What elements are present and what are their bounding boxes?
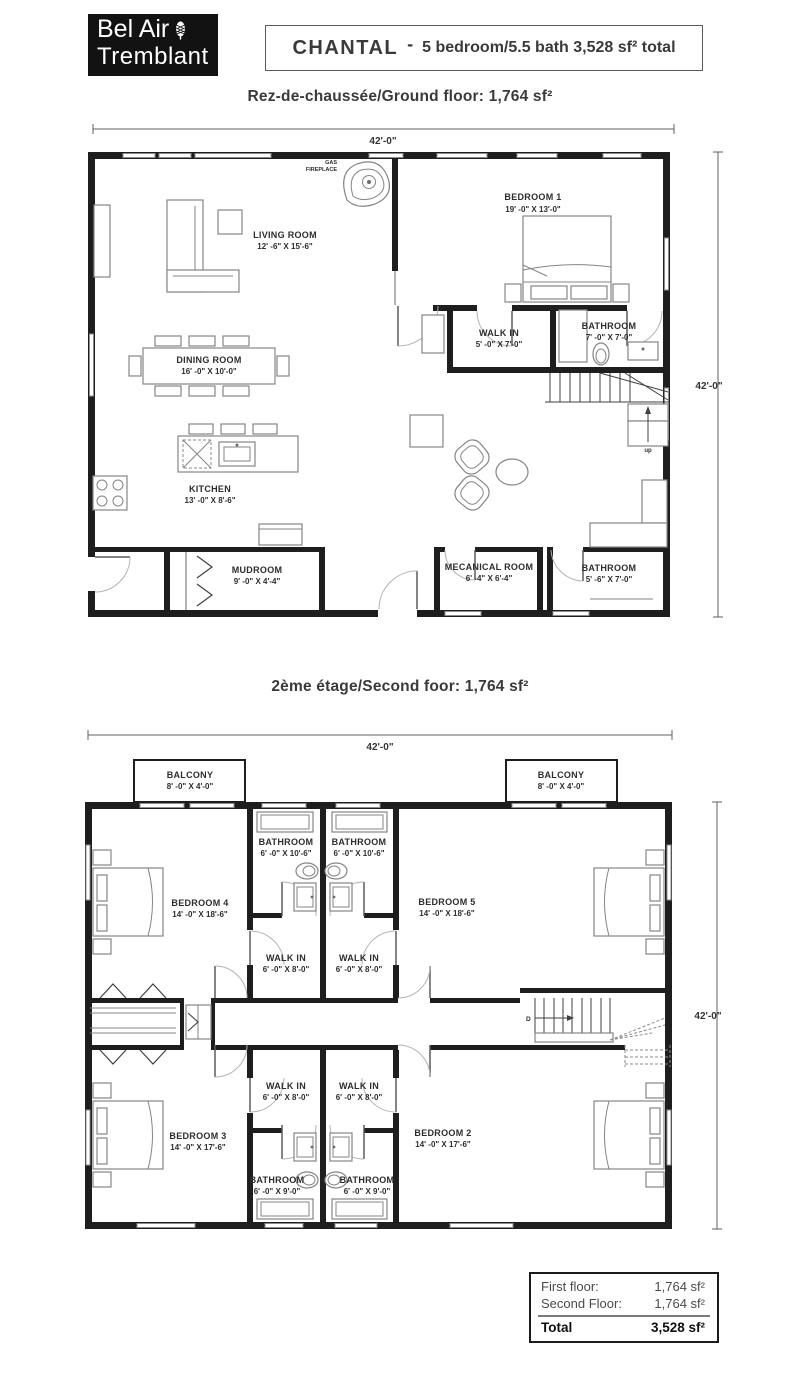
bed-bedroom4 [93,850,163,954]
bedroom1-label: BEDROOM 1 [504,192,561,202]
total-label: Total [541,1320,572,1335]
summary-row-first-floor: First floor: 1,764 sf² [531,1278,717,1295]
stove [93,476,127,510]
bedroom3-label: BEDROOM 3 [169,1131,226,1141]
fireplace: GAS FIREPLACE [306,160,390,206]
second-interior-walls [85,809,665,1222]
first-floor-label: First floor: [541,1279,599,1294]
ensuite-bathroom-label: BATHROOM [582,321,637,331]
svg-text:8' -0" X 4'-0": 8' -0" X 4'-0" [538,782,585,791]
bed-bedroom5 [594,850,664,954]
svg-text:14' -0" X 17'-6": 14' -0" X 17'-6" [170,1143,226,1152]
summary-row-total: Total 3,528 sf² [531,1319,717,1336]
bathroom3-label: BATHROOM [250,1175,305,1185]
svg-text:6' -0" X 8'-0": 6' -0" X 8'-0" [263,1093,310,1102]
hallway [90,984,211,1064]
second-floor-plan: 42'-0" 42'-0" BALCONY 8' -0" X 4'-0" BAL… [80,725,730,1235]
dining-room-label: DINING ROOM [176,355,241,365]
bedroom2-label: BEDROOM 2 [414,1128,471,1138]
sitting-area [451,436,528,514]
svg-text:7' -0" X 7'-0": 7' -0" X 7'-0" [586,333,633,342]
svg-text:6' -0" X 9'-0": 6' -0" X 9'-0" [254,1187,301,1196]
hall-closet [422,315,444,353]
walkin2-label: WALK IN [339,1081,379,1091]
balcony-left-label: BALCONY [167,770,214,780]
hall-cabinet [410,415,443,447]
bedroom4-label: BEDROOM 4 [171,898,228,908]
plan-title-box: CHANTAL - 5 bedroom/5.5 bath 3,528 sf² t… [265,25,703,71]
total-value: 3,528 sf² [651,1320,705,1335]
walkin4-label: WALK IN [266,953,306,963]
stairs-down-label: D [526,1016,531,1023]
svg-text:14' -0" X 18'-6": 14' -0" X 18'-6" [172,910,228,919]
cabinet [94,205,110,277]
bed-bedroom3 [93,1083,163,1187]
svg-text:6' -0" X 10'-6": 6' -0" X 10'-6" [261,849,312,858]
second-floor-heading: 2ème étage/Second foor: 1,764 sf² [0,678,800,696]
logo-line1: Bel Air [97,16,169,44]
balconies: BALCONY 8' -0" X 4'-0" BALCONY 8' -0" X … [134,760,617,802]
bench [590,480,667,547]
dining-table [129,336,289,396]
kitchen-counter [259,524,302,545]
bed-bedroom2 [594,1083,664,1187]
gas-fireplace-label1: GAS [325,160,337,166]
second-floor-label: Second Floor: [541,1296,622,1311]
bed-bedroom1 [505,216,629,302]
svg-text:5' -0" X 7'-0": 5' -0" X 7'-0" [476,340,523,349]
second-windows [86,804,671,1228]
logo-line2: Tremblant [97,44,218,70]
walkin5-label: WALK IN [339,953,379,963]
plan-summary: 5 bedroom/5.5 bath 3,528 sf² total [422,39,675,57]
svg-text:6' -0" X 8'-0": 6' -0" X 8'-0" [336,965,383,974]
ground-floor-plan: 42'-0" 42'-0" [85,120,735,625]
summary-divider [538,1315,710,1317]
svg-text:16' -0" X 10'-0": 16' -0" X 10'-0" [181,367,237,376]
svg-text:6' -0" X 8'-0": 6' -0" X 8'-0" [336,1093,383,1102]
pinecone-icon [174,20,187,40]
bathroom5-label: BATHROOM [332,837,387,847]
second-height-dim: 42'-0" [694,1011,721,1022]
walkin-label: WALK IN [479,328,519,338]
gas-fireplace-label2: FIREPLACE [306,167,338,173]
summary-row-second-floor: Second Floor: 1,764 sf² [531,1295,717,1312]
balcony-right-label: BALCONY [538,770,585,780]
svg-text:19' -0" X 13'-0": 19' -0" X 13'-0" [505,205,561,214]
ground-height-dim: 42'-0" [695,381,722,392]
svg-text:6' -0" X 10'-6": 6' -0" X 10'-6" [334,849,385,858]
bathroom2-label: BATHROOM [340,1175,395,1185]
svg-text:8' -0" X 4'-0": 8' -0" X 4'-0" [167,782,214,791]
bedroom5-label: BEDROOM 5 [418,897,475,907]
plan-sheet: Bel Air Tremblant CHANTAL - 5 bedroom/5.… [0,0,800,1375]
side-table [218,210,242,234]
svg-text:9' -0" X 4'-4": 9' -0" X 4'-4" [234,577,281,586]
svg-text:14' -0" X 17'-6": 14' -0" X 17'-6" [415,1140,471,1149]
first-floor-value: 1,764 sf² [654,1279,705,1294]
svg-text:6' -0" X 8'-0": 6' -0" X 8'-0" [263,965,310,974]
kitchen-island [178,424,298,472]
mechanical-room-label: MECANICAL ROOM [445,562,534,572]
svg-text:12' -6" X 15'-6": 12' -6" X 15'-6" [257,242,313,251]
svg-text:6' -4" X 6'-4": 6' -4" X 6'-4" [466,574,513,583]
main-bathroom-label: BATHROOM [582,563,637,573]
svg-text:5' -6" X 7'-0": 5' -6" X 7'-0" [586,575,633,584]
second-exterior-walls [85,802,672,1229]
stairs-up-label: up [644,448,652,454]
mudroom-closet-doors [197,556,212,606]
walkin3-label: WALK IN [266,1081,306,1091]
svg-text:13' -0" X 8'-6": 13' -0" X 8'-6" [185,496,236,505]
title-dash: - [407,34,413,55]
ground-floor-heading: Rez-de-chaussée/Ground floor: 1,764 sf² [0,88,800,106]
svg-text:14' -0" X 18'-6": 14' -0" X 18'-6" [419,909,475,918]
second-stairs: D [526,998,670,1067]
area-summary-table: First floor: 1,764 sf² Second Floor: 1,7… [529,1272,719,1343]
living-room-label: LIVING ROOM [253,230,317,240]
ground-width-dim: 42'-0" [369,136,396,147]
brand-logo: Bel Air Tremblant [88,14,218,76]
svg-text:6' -0" X 9'-0": 6' -0" X 9'-0" [344,1187,391,1196]
bathroom4-label: BATHROOM [259,837,314,847]
second-width-dim: 42'-0" [366,742,393,753]
plan-name: CHANTAL [292,37,398,60]
mudroom-label: MUDROOM [232,565,283,575]
kitchen-label: KITCHEN [189,484,231,494]
ground-stairs: up [545,373,670,454]
second-floor-value: 1,764 sf² [654,1296,705,1311]
